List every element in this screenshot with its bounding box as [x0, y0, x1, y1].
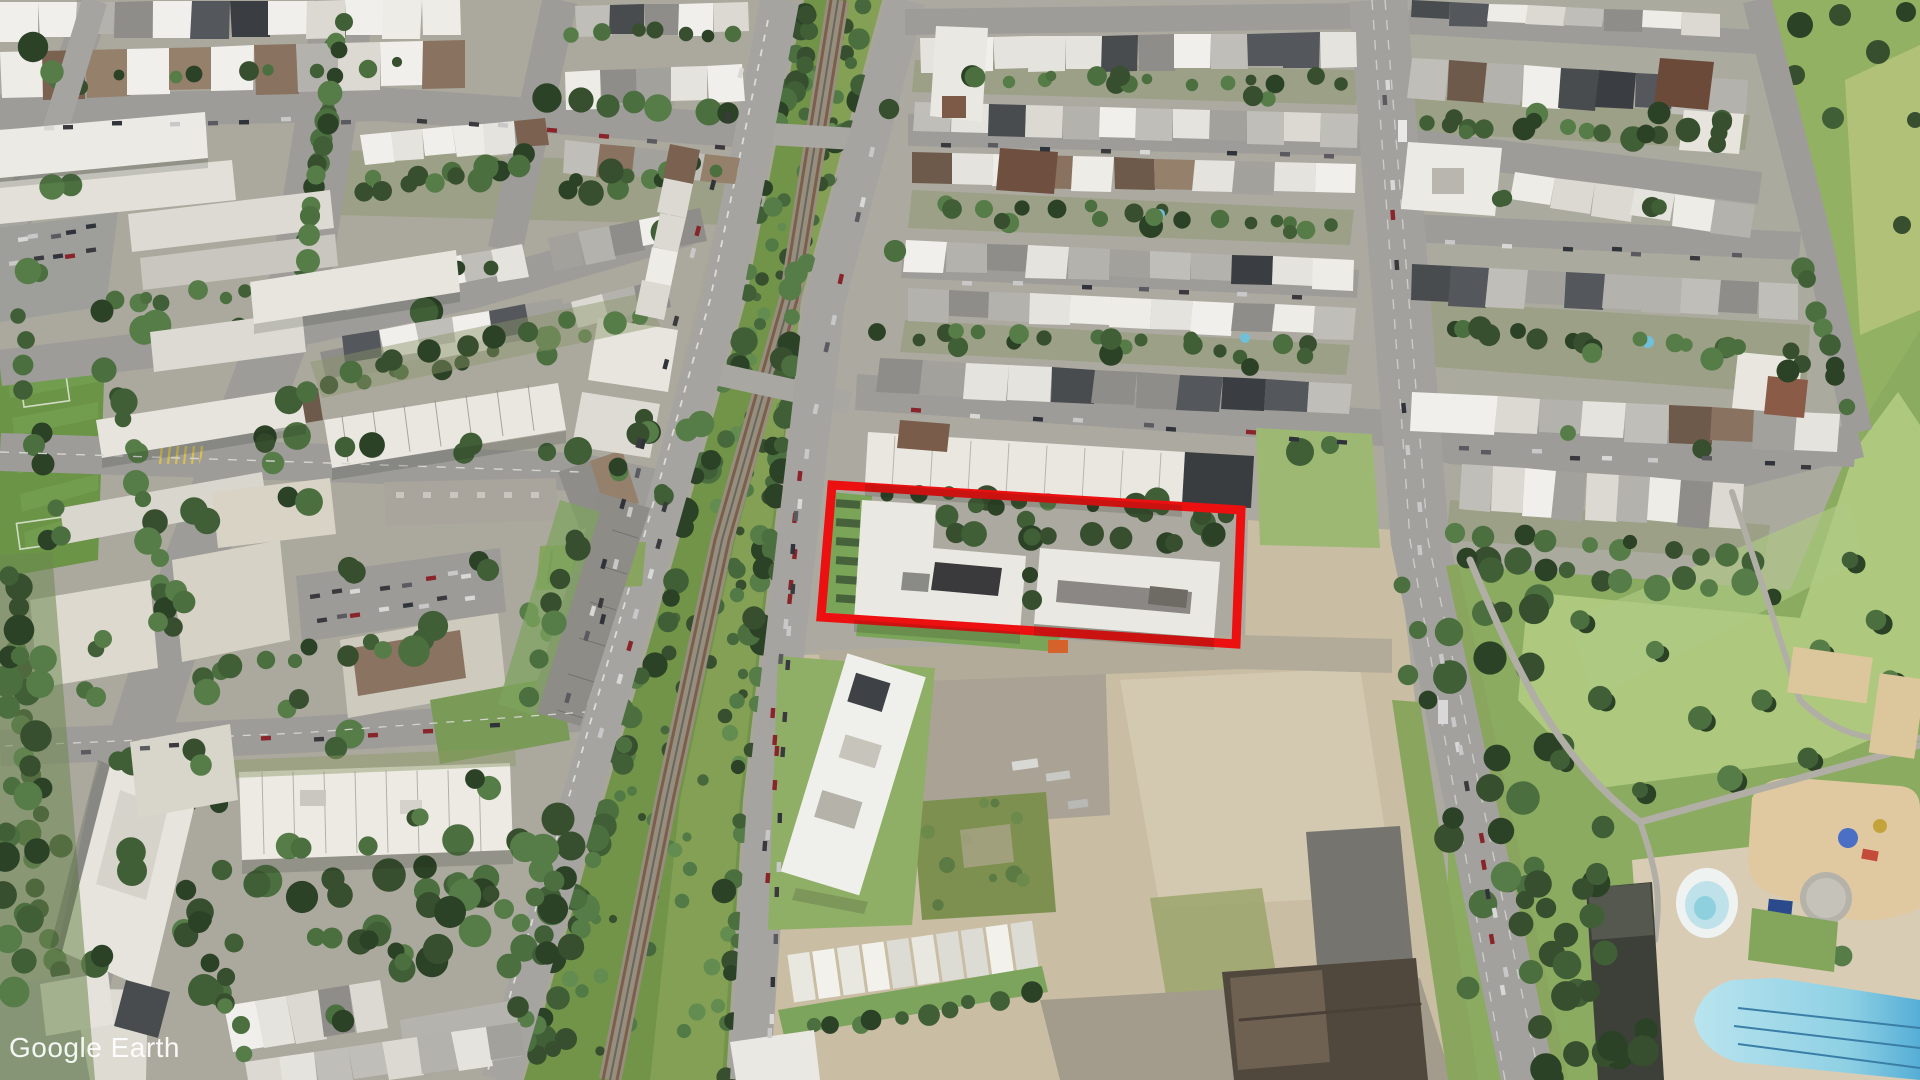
svg-text:Google Earth: Google Earth	[9, 1032, 180, 1063]
